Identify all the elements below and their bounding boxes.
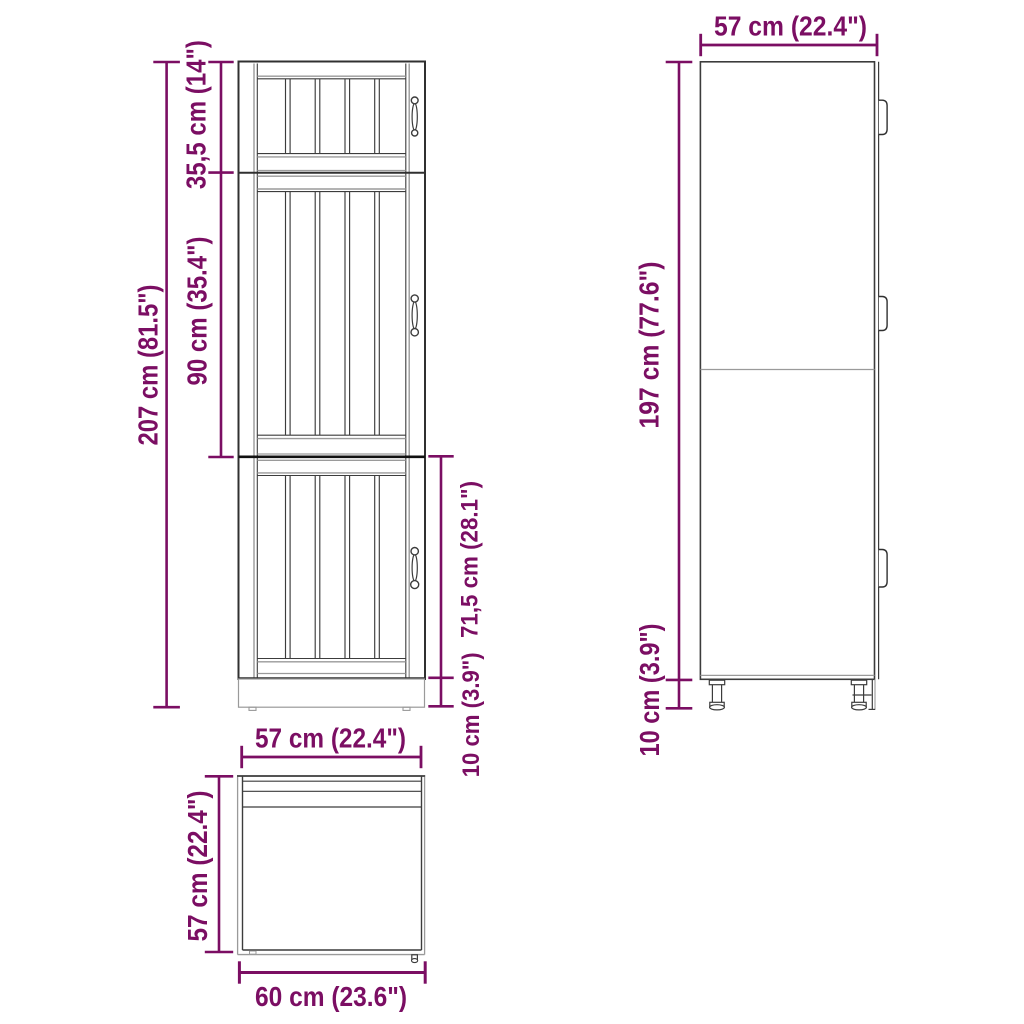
svg-text:71,5 cm (28.1"): 71,5 cm (28.1") [456, 481, 483, 638]
svg-text:60 cm (23.6"): 60 cm (23.6") [255, 981, 407, 1012]
svg-text:207 cm (81.5"): 207 cm (81.5") [133, 285, 164, 446]
svg-text:35,5 cm (14"): 35,5 cm (14") [181, 40, 212, 189]
svg-text:197 cm (77.6"): 197 cm (77.6") [634, 262, 665, 429]
svg-text:57 cm (22.4"): 57 cm (22.4") [714, 11, 867, 42]
svg-text:10 cm (3.9"): 10 cm (3.9") [634, 624, 665, 757]
svg-text:90 cm (35.4"): 90 cm (35.4") [181, 237, 212, 386]
svg-text:57 cm (22.4"): 57 cm (22.4") [255, 723, 406, 754]
svg-text:57 cm (22.4"): 57 cm (22.4") [182, 791, 213, 942]
svg-text:10 cm (3.9"): 10 cm (3.9") [458, 652, 485, 777]
